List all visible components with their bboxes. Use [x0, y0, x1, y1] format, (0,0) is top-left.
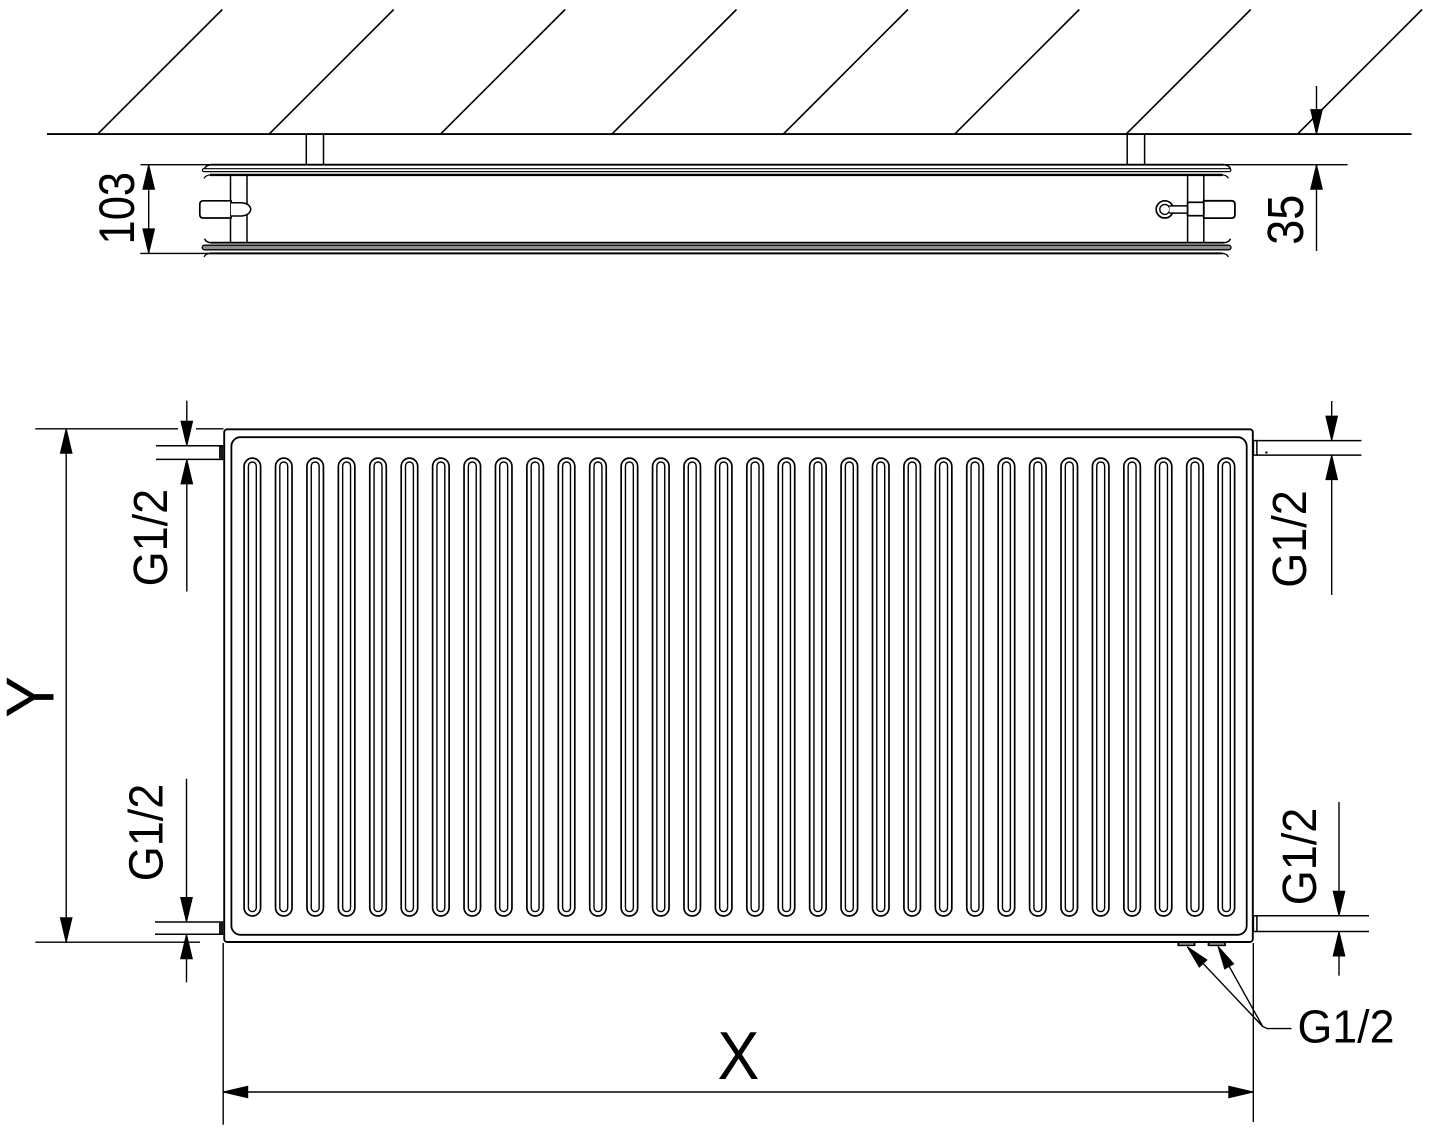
svg-text:G1/2: G1/2 — [125, 489, 178, 587]
svg-text:G1/2: G1/2 — [1298, 1000, 1395, 1052]
svg-text:X: X — [718, 1018, 760, 1094]
svg-text:G1/2: G1/2 — [121, 784, 174, 882]
svg-text:Y: Y — [0, 676, 69, 718]
svg-text:35: 35 — [1257, 195, 1314, 245]
svg-text:G1/2: G1/2 — [1264, 490, 1317, 588]
svg-text:103: 103 — [89, 172, 145, 245]
svg-text:G1/2: G1/2 — [1274, 808, 1327, 906]
